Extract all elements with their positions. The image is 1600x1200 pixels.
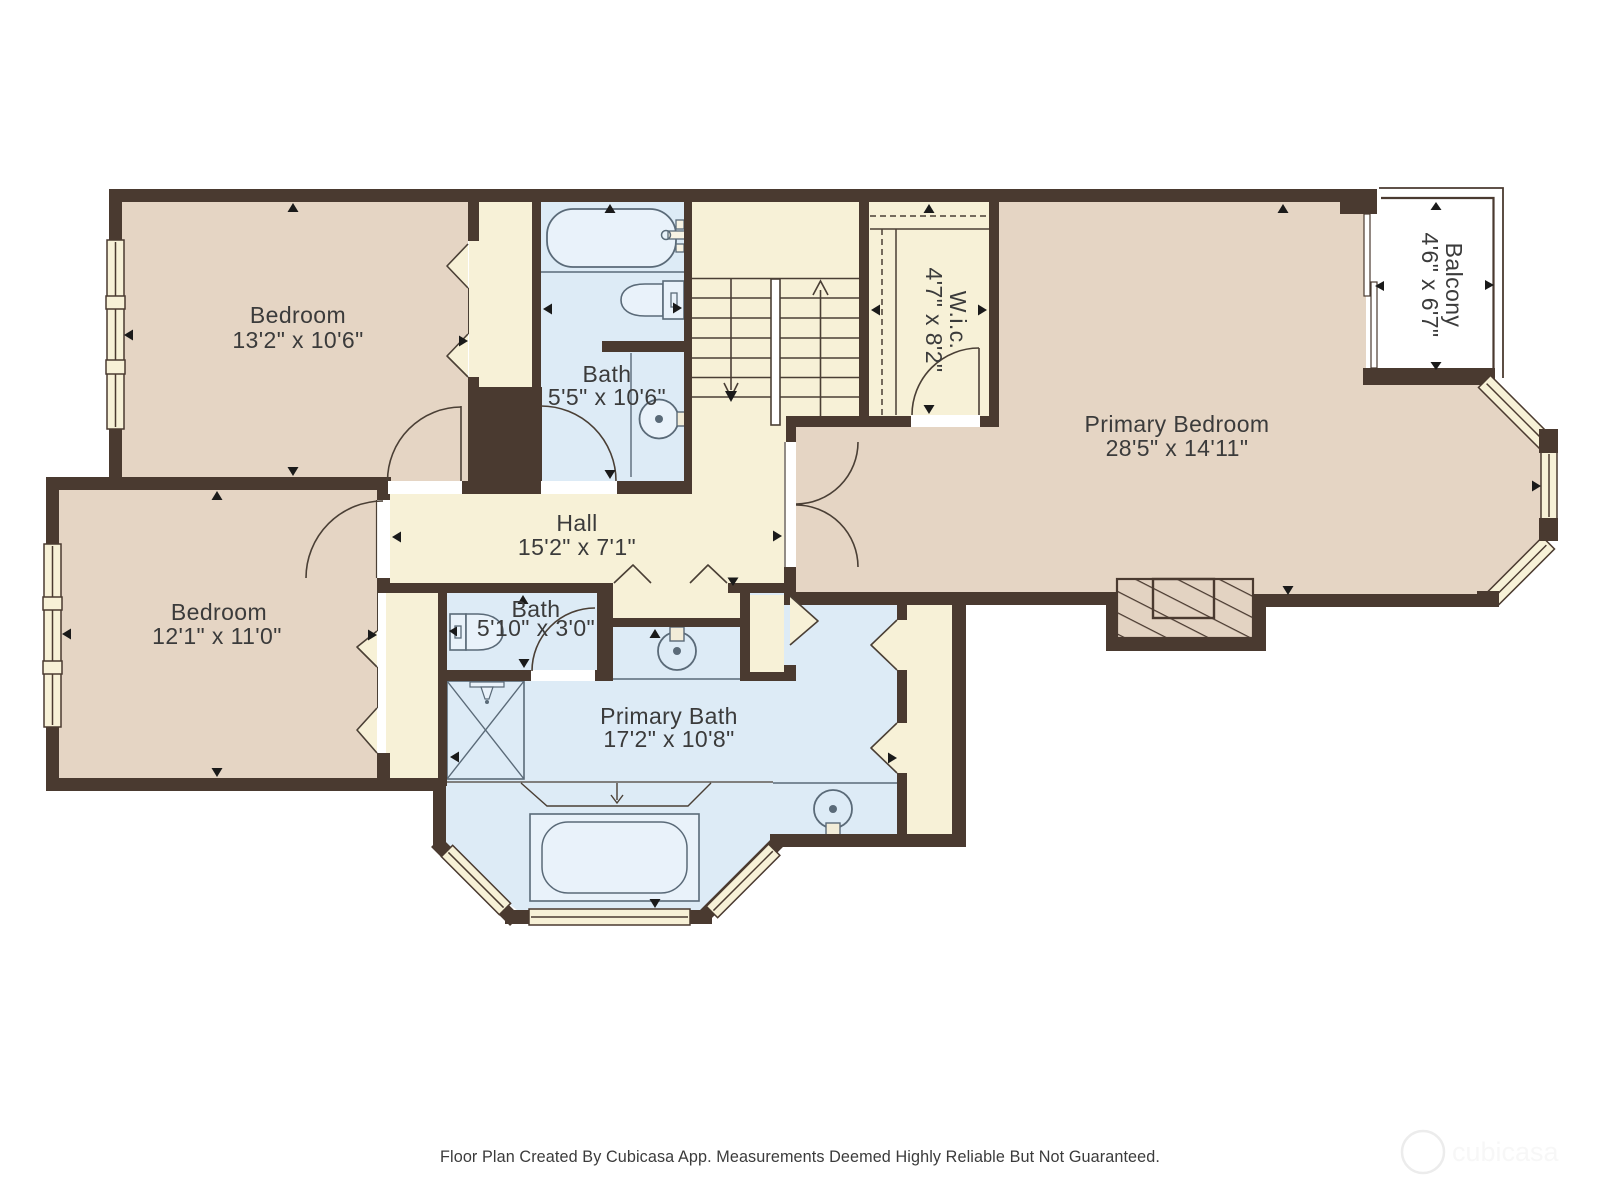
svg-text:Bedroom: Bedroom xyxy=(171,599,267,625)
svg-text:13'2" x 10'6": 13'2" x 10'6" xyxy=(232,327,363,353)
svg-text:Bedroom: Bedroom xyxy=(250,302,346,328)
svg-text:Balcony: Balcony xyxy=(1441,243,1467,328)
svg-text:12'1" x 11'0": 12'1" x 11'0" xyxy=(152,623,282,649)
svg-text:5'5" x 10'6": 5'5" x 10'6" xyxy=(548,384,666,410)
svg-text:Hall: Hall xyxy=(556,510,597,536)
svg-text:W.i.c.: W.i.c. xyxy=(945,291,971,350)
svg-text:4'7" x 8'2": 4'7" x 8'2" xyxy=(921,268,947,373)
svg-text:15'2" x 7'1": 15'2" x 7'1" xyxy=(518,534,636,560)
svg-text:Floor Plan Created By Cubicasa: Floor Plan Created By Cubicasa App. Meas… xyxy=(440,1148,1160,1166)
svg-text:Primary Bedroom: Primary Bedroom xyxy=(1085,411,1270,437)
svg-text:cubicasa: cubicasa xyxy=(1452,1137,1560,1167)
svg-text:17'2" x 10'8": 17'2" x 10'8" xyxy=(603,726,734,752)
svg-text:5'10" x 3'0": 5'10" x 3'0" xyxy=(477,615,595,641)
svg-text:4'6" x 6'7": 4'6" x 6'7" xyxy=(1417,233,1443,338)
svg-text:28'5" x 14'11": 28'5" x 14'11" xyxy=(1106,435,1249,461)
